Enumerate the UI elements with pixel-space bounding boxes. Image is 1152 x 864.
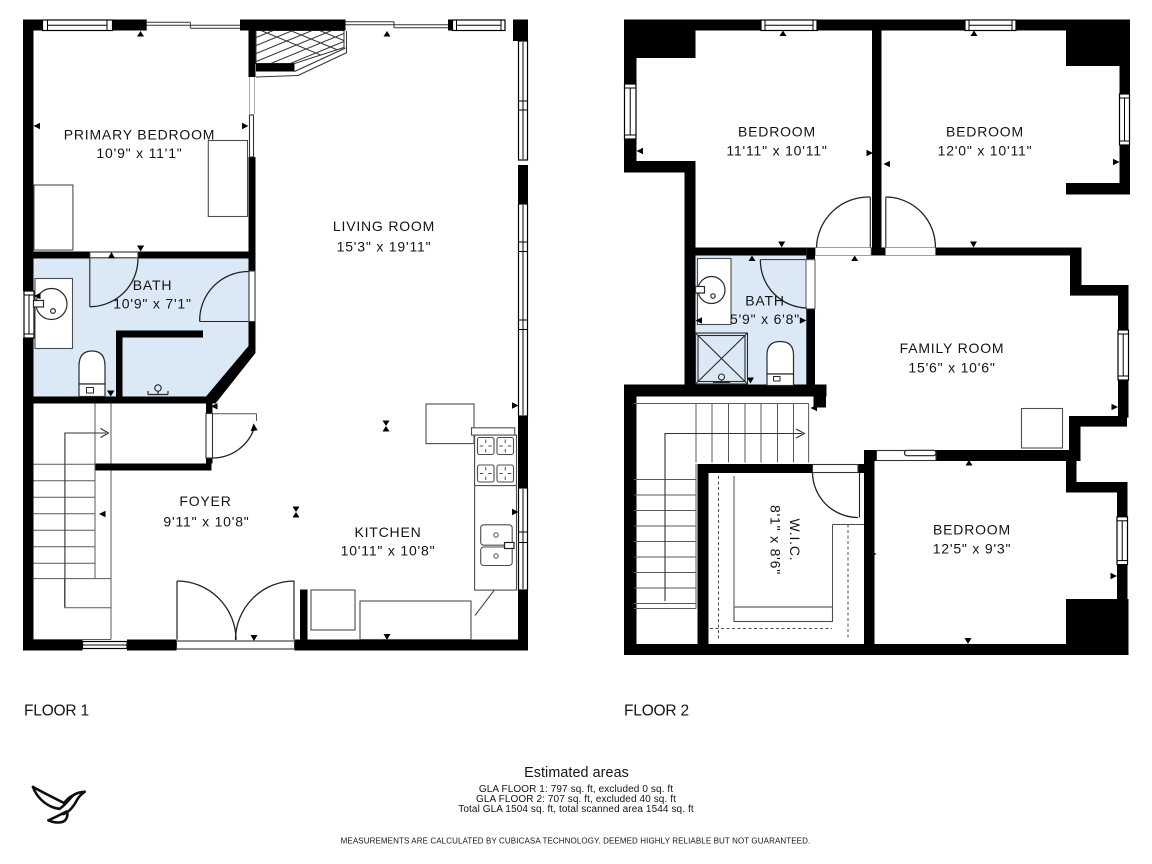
svg-text:9'11" x 10'8": 9'11" x 10'8" xyxy=(163,514,249,530)
svg-text:BEDROOM: BEDROOM xyxy=(933,522,1011,538)
svg-text:8'1" x 8'6": 8'1" x 8'6" xyxy=(768,505,784,575)
svg-text:MEASUREMENTS ARE CALCULATED BY: MEASUREMENTS ARE CALCULATED BY CUBICASA … xyxy=(341,836,811,845)
svg-text:W.I.C.: W.I.C. xyxy=(787,519,803,562)
svg-text:15'3" x 19'11": 15'3" x 19'11" xyxy=(337,239,432,255)
svg-text:PRIMARY BEDROOM: PRIMARY BEDROOM xyxy=(64,127,216,143)
svg-text:Total GLA 1504 sq. ft, total s: Total GLA 1504 sq. ft, total scanned are… xyxy=(458,804,694,815)
svg-text:BEDROOM: BEDROOM xyxy=(738,124,816,140)
svg-text:Estimated areas: Estimated areas xyxy=(524,765,629,781)
svg-text:LIVING ROOM: LIVING ROOM xyxy=(333,218,435,234)
svg-text:11'11" x 10'11": 11'11" x 10'11" xyxy=(726,143,827,159)
svg-text:BATH: BATH xyxy=(745,293,785,309)
svg-text:10'9" x 11'1": 10'9" x 11'1" xyxy=(96,145,182,161)
svg-text:BEDROOM: BEDROOM xyxy=(946,124,1024,140)
svg-text:KITCHEN: KITCHEN xyxy=(354,524,421,540)
svg-text:12'0" x 10'11": 12'0" x 10'11" xyxy=(938,143,1033,159)
svg-text:FLOOR 2: FLOOR 2 xyxy=(624,703,689,720)
svg-text:FLOOR 1: FLOOR 1 xyxy=(24,703,89,720)
svg-text:FOYER: FOYER xyxy=(179,493,231,509)
svg-text:BATH: BATH xyxy=(133,277,173,293)
svg-text:FAMILY ROOM: FAMILY ROOM xyxy=(900,340,1005,356)
svg-text:10'11" x 10'8": 10'11" x 10'8" xyxy=(341,543,436,559)
svg-text:5'9" x 6'8": 5'9" x 6'8" xyxy=(730,311,800,327)
svg-text:10'9" x 7'1": 10'9" x 7'1" xyxy=(113,296,192,312)
svg-text:12'5" x 9'3": 12'5" x 9'3" xyxy=(933,541,1012,557)
svg-text:15'6" x 10'6": 15'6" x 10'6" xyxy=(908,360,995,376)
